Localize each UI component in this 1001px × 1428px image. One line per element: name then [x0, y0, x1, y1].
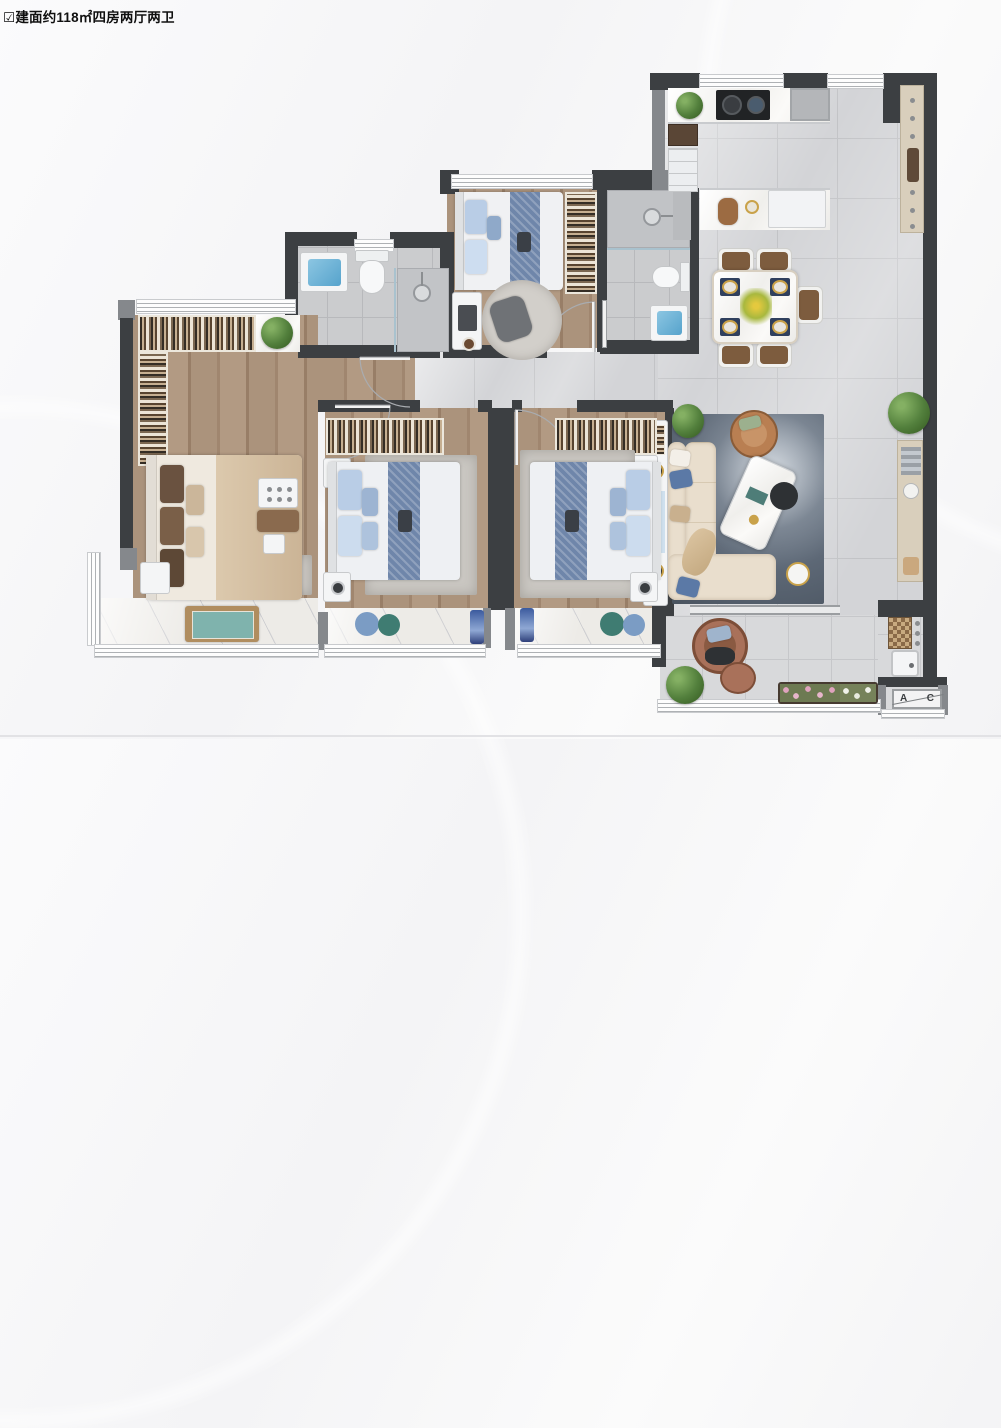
sink-basin — [657, 311, 682, 335]
placemat — [720, 278, 740, 296]
bathroom-sink — [650, 305, 688, 341]
bedroom2-balcony-floor — [325, 608, 488, 648]
wall-segment — [120, 318, 133, 550]
headboard — [652, 462, 661, 580]
study-bed — [455, 192, 563, 290]
flower-planter — [778, 682, 878, 704]
headboard — [455, 192, 464, 290]
master-dresser — [258, 478, 298, 508]
wall-segment — [120, 548, 137, 570]
utility-shaft — [488, 408, 514, 610]
wall-segment — [118, 300, 135, 320]
tray-inlay — [192, 611, 254, 639]
nightstand — [323, 572, 351, 602]
window — [518, 645, 660, 657]
wall-segment — [923, 120, 937, 677]
pillow — [362, 522, 378, 550]
wall-segment — [690, 188, 699, 352]
console-decor — [903, 557, 919, 575]
shower-head — [413, 284, 431, 302]
dining-chair — [795, 286, 823, 324]
toilet-tank — [680, 262, 690, 292]
window — [882, 710, 944, 718]
window — [828, 75, 883, 88]
toilet-bowl — [652, 266, 680, 288]
nightstand-decor — [638, 581, 652, 595]
laptop — [458, 305, 477, 331]
small-round-table — [786, 562, 810, 586]
ac-label-a: A — [900, 693, 907, 704]
pillow — [160, 465, 184, 503]
console-decor — [903, 483, 919, 499]
nightstand — [140, 562, 170, 594]
balcony-plant — [666, 666, 704, 704]
floorplan-title: ☑建面约118㎡四房两厅两卫 — [3, 6, 175, 26]
entry-console-cabinet — [900, 85, 924, 233]
gas-stove — [716, 90, 770, 120]
placemat — [720, 318, 740, 336]
bedroom2-bed — [328, 462, 460, 580]
pink-flowers — [780, 684, 840, 702]
kitchen-island — [768, 190, 826, 228]
refrigerator — [668, 124, 698, 146]
pillow — [626, 470, 650, 510]
wall-segment — [592, 170, 654, 190]
kitchen-sink-counter — [790, 88, 830, 121]
placemat — [770, 278, 790, 296]
nightstand — [630, 572, 658, 602]
study-wardrobe — [565, 192, 597, 294]
white-flowers — [840, 684, 876, 702]
wall-segment — [652, 615, 666, 667]
master-wardrobe — [138, 315, 256, 352]
toilet — [355, 250, 389, 296]
wall-segment — [577, 400, 673, 412]
bed-decor — [517, 232, 531, 252]
pillow — [338, 516, 362, 556]
wall-segment — [483, 608, 491, 648]
laundry-counter — [888, 617, 912, 649]
master-bathroom-door[interactable] — [360, 357, 410, 407]
bedroom2-wardrobe — [326, 418, 444, 455]
laundry-sink — [891, 650, 919, 677]
ac-label-c: C — [927, 693, 934, 704]
pillow — [465, 200, 487, 234]
sliding-door[interactable] — [690, 605, 840, 615]
hanging-towel — [520, 608, 534, 642]
pillow — [160, 507, 184, 545]
table-decor-tray — [747, 513, 760, 526]
lounge-armchair — [730, 410, 778, 458]
table-decor-book — [745, 486, 768, 505]
balcony-pouf — [623, 614, 645, 636]
balcony-tray-table — [185, 606, 259, 642]
pillow — [465, 240, 487, 274]
window — [137, 300, 295, 313]
bathroom-niche — [673, 190, 691, 240]
window — [325, 645, 485, 657]
window — [88, 553, 100, 645]
nightstand-decor — [331, 581, 345, 595]
bathroom-sink — [300, 252, 348, 292]
living-plant — [672, 404, 704, 438]
sofa-pillow — [669, 449, 691, 468]
hanging-towel — [470, 610, 484, 644]
toilet — [650, 262, 690, 292]
ottoman — [720, 662, 756, 694]
cutting-board — [718, 198, 738, 225]
pillow — [626, 516, 650, 556]
wall-segment — [600, 340, 699, 354]
sink-basin — [308, 259, 341, 286]
burner — [722, 95, 742, 115]
shower-glass — [607, 248, 690, 250]
bed-bench — [257, 510, 299, 532]
dining-chair — [718, 342, 754, 368]
sofa-pillow — [669, 505, 691, 523]
dining-chair — [756, 342, 792, 368]
bed-decor — [398, 510, 412, 532]
kitchen-plant — [676, 92, 703, 119]
study-desk — [452, 292, 482, 350]
window — [700, 75, 783, 88]
ac-unit-marker: A C — [892, 689, 942, 709]
shoe-cabinet — [897, 440, 923, 582]
pillow — [338, 470, 362, 510]
tray-table — [263, 534, 285, 554]
pillow — [610, 522, 626, 550]
placemat — [770, 318, 790, 336]
shower-arm — [421, 272, 423, 286]
window — [452, 175, 592, 188]
balcony-pouf — [378, 614, 400, 636]
coffee-mug — [462, 337, 476, 351]
bed-decor — [565, 510, 579, 532]
bedroom3-bed — [530, 462, 660, 580]
floor-plan: A C — [85, 58, 947, 720]
pillow — [186, 527, 204, 557]
pillow — [487, 216, 501, 240]
shower-head — [643, 208, 661, 226]
balcony-pouf — [355, 612, 379, 636]
shower-area — [397, 268, 449, 352]
entry-plant — [888, 392, 930, 434]
side-table — [770, 482, 798, 510]
shower-glass — [394, 268, 396, 352]
balcony-pouf — [600, 612, 624, 636]
kitchen-appliance — [668, 148, 698, 192]
console-handles — [907, 148, 919, 182]
master-wardrobe-side — [138, 352, 168, 466]
bathroom-door-leaf[interactable] — [602, 300, 607, 348]
pillow — [186, 485, 204, 515]
sofa-pillow — [669, 468, 694, 490]
checked-box-icon: ☑ — [3, 10, 15, 25]
pillow — [362, 488, 378, 516]
flower-centerpiece — [740, 288, 772, 328]
window — [95, 645, 318, 657]
wall-segment — [505, 608, 515, 650]
folded-towels — [901, 447, 921, 475]
laundry-knobs — [914, 619, 922, 649]
dining-table — [712, 270, 798, 344]
bowl — [745, 200, 759, 214]
title-text: 建面约118㎡四房两厅两卫 — [15, 10, 174, 25]
burner — [747, 96, 765, 114]
potted-plant — [261, 317, 293, 349]
wall-segment — [878, 677, 947, 687]
headboard — [328, 462, 337, 580]
pillow — [610, 488, 626, 516]
page-bottom-divider — [0, 735, 1001, 737]
toilet-bowl — [359, 260, 385, 294]
wall-segment — [878, 600, 937, 617]
